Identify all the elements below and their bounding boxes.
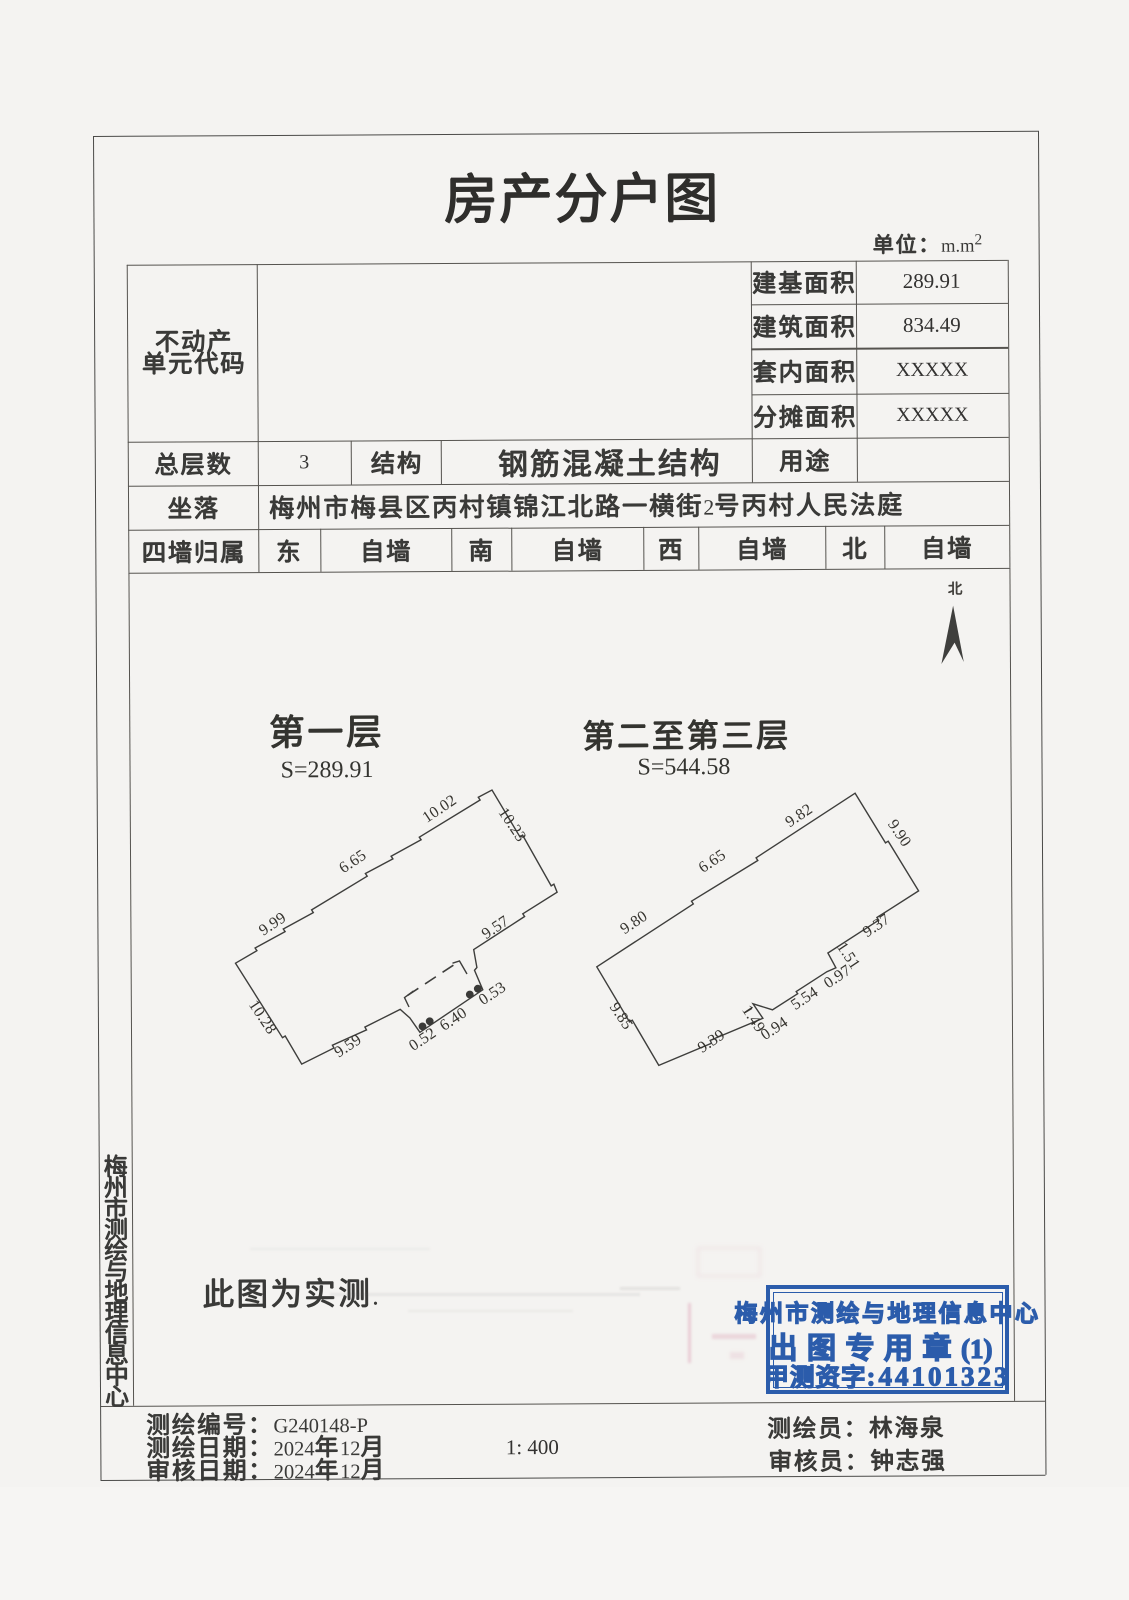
svg-text:9.99: 9.99 — [256, 909, 289, 939]
svg-text:6.40: 6.40 — [437, 1004, 470, 1034]
svg-text:9.39: 9.39 — [695, 1026, 728, 1056]
svg-text:5.54: 5.54 — [788, 984, 821, 1014]
svg-text:6.65: 6.65 — [336, 847, 369, 877]
svg-text:9.90: 9.90 — [884, 817, 914, 850]
svg-text:10.02: 10.02 — [420, 792, 460, 827]
svg-text:9.85: 9.85 — [606, 1000, 636, 1033]
svg-text:9.82: 9.82 — [782, 801, 815, 831]
svg-text:10.28: 10.28 — [245, 997, 280, 1037]
svg-text:9.57: 9.57 — [479, 913, 512, 943]
svg-text:9.37: 9.37 — [860, 911, 893, 941]
svg-text:0.53: 0.53 — [476, 979, 509, 1009]
svg-text:0.52: 0.52 — [406, 1025, 439, 1055]
svg-text:10.23: 10.23 — [495, 805, 530, 845]
svg-text:9.59: 9.59 — [331, 1031, 364, 1061]
svg-text:6.65: 6.65 — [696, 846, 729, 876]
svg-text:9.80: 9.80 — [617, 908, 650, 938]
